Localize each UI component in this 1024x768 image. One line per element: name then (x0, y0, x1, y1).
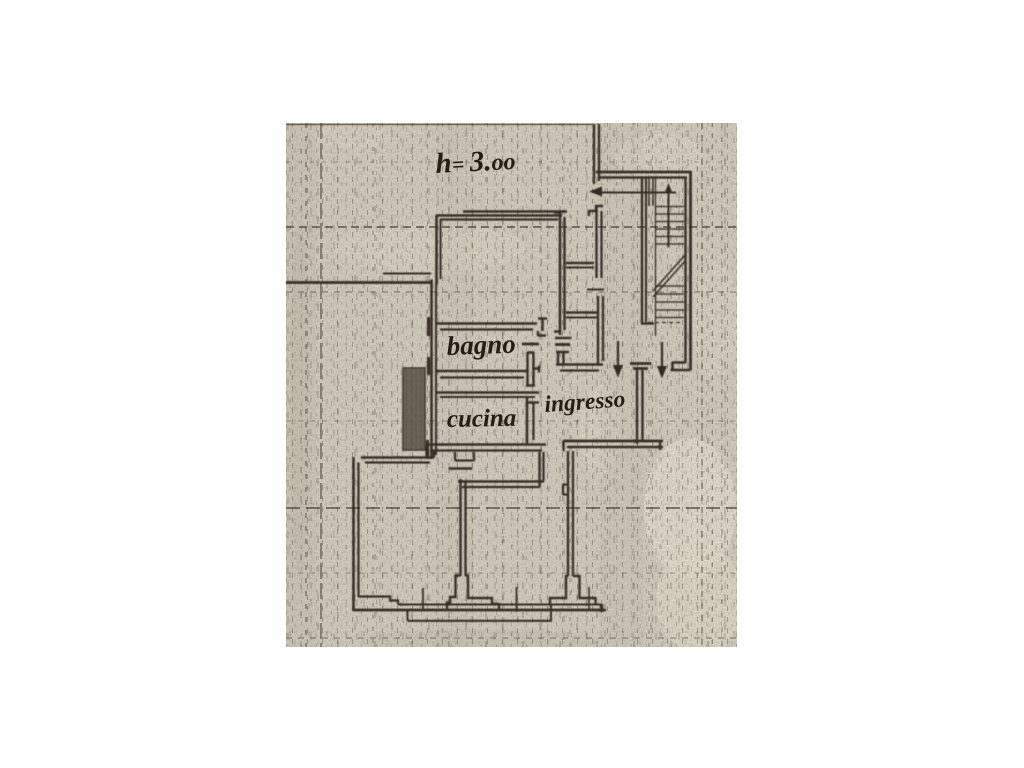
svg-text:h= 3.oo: h= 3.oo (435, 144, 517, 180)
svg-text:cucina: cucina (447, 405, 517, 433)
svg-text:bagno: bagno (446, 329, 516, 361)
